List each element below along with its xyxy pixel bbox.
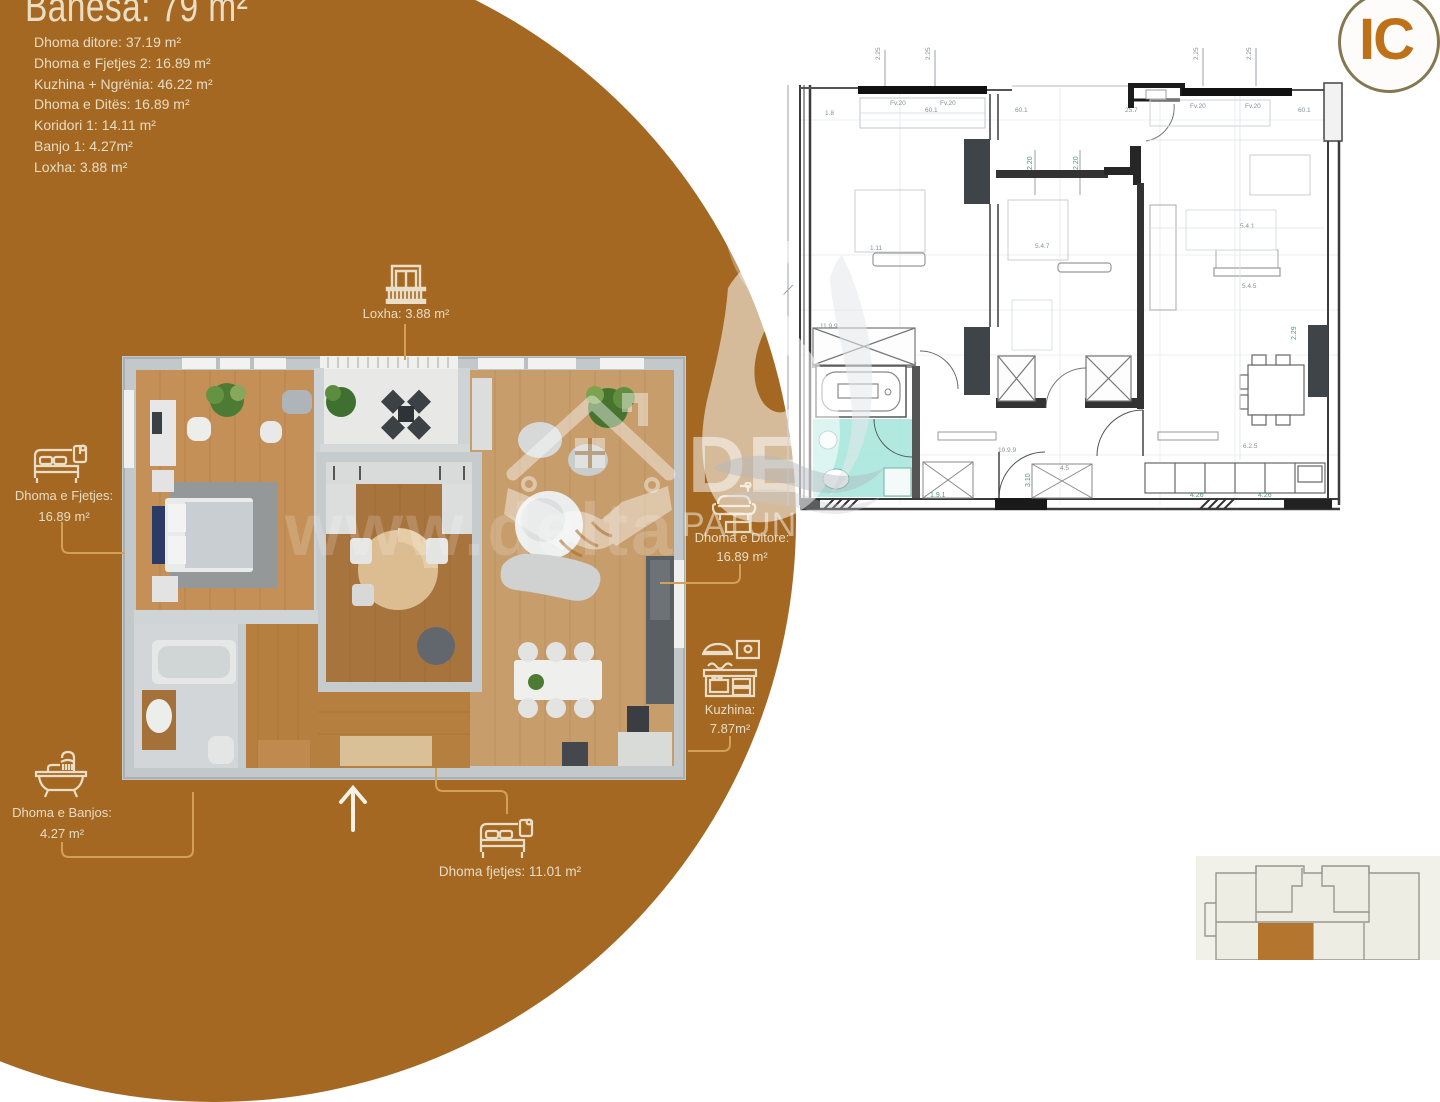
svg-text:4.5: 4.5 xyxy=(1060,465,1069,472)
svg-text:5.4.5: 5.4.5 xyxy=(1242,283,1257,290)
svg-text:2.20: 2.20 xyxy=(1027,156,1034,170)
svg-text:3.10: 3.10 xyxy=(1025,473,1032,487)
svg-text:2.25: 2.25 xyxy=(1246,47,1253,60)
svg-text:Fv.20: Fv.20 xyxy=(1245,103,1261,110)
svg-text:2.20: 2.20 xyxy=(1073,156,1080,170)
svg-text:10.9.9: 10.9.9 xyxy=(998,447,1016,454)
svg-text:60.1: 60.1 xyxy=(1298,107,1311,114)
svg-text:Fv.20: Fv.20 xyxy=(940,100,956,107)
svg-text:60.1: 60.1 xyxy=(1015,107,1028,114)
svg-text:5.4.7: 5.4.7 xyxy=(1035,243,1050,250)
svg-text:2.29: 2.29 xyxy=(1291,326,1298,340)
svg-text:6.2.5: 6.2.5 xyxy=(1243,443,1258,450)
svg-text:5.4.1: 5.4.1 xyxy=(1240,223,1255,230)
svg-text:Fv.20: Fv.20 xyxy=(1190,103,1206,110)
svg-text:25.7: 25.7 xyxy=(1125,107,1138,114)
svg-text:2.25: 2.25 xyxy=(1193,47,1200,60)
